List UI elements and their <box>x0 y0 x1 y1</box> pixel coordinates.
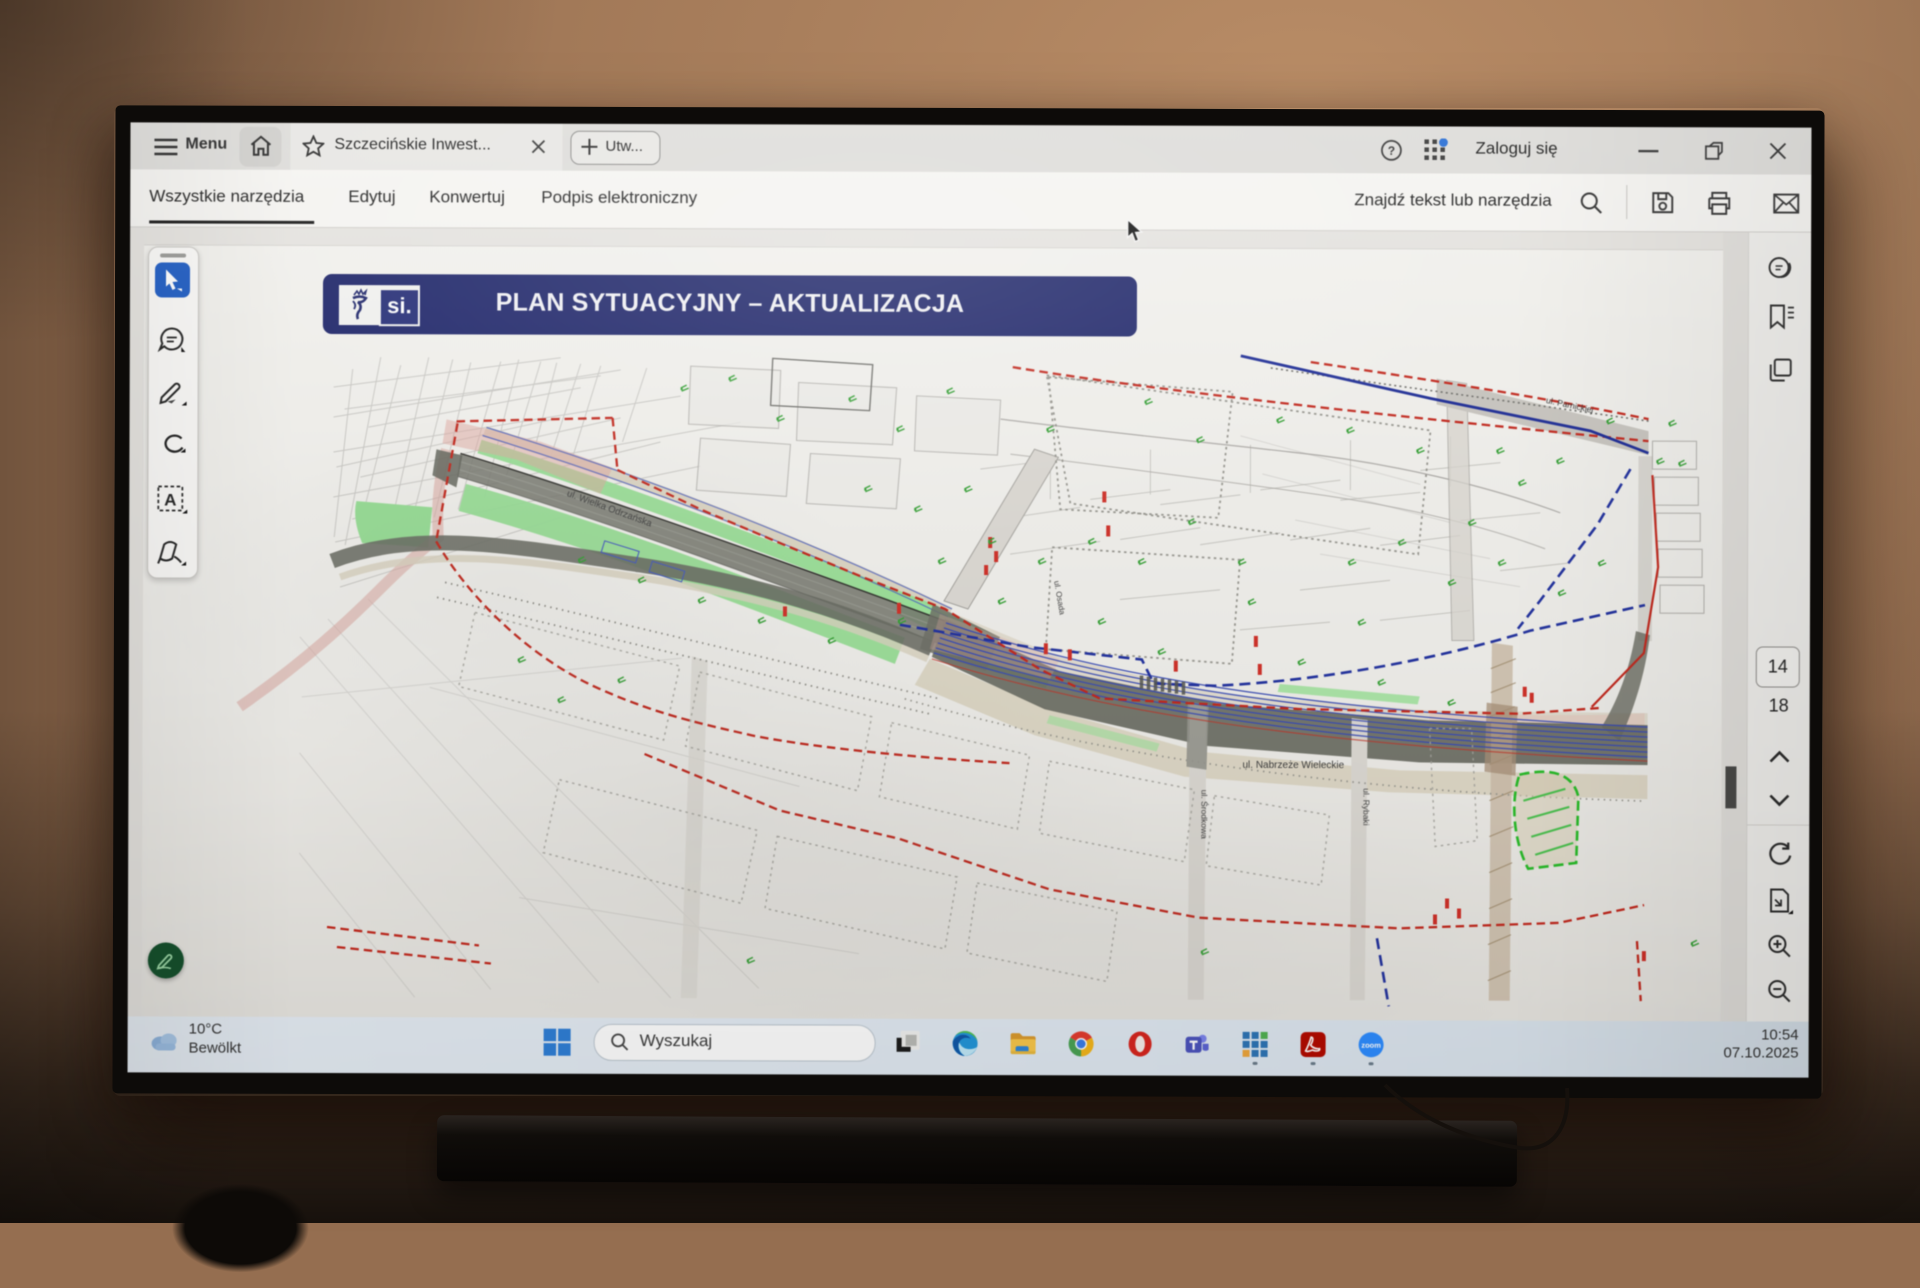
svg-text:ul. Osada: ul. Osada <box>1052 580 1067 616</box>
svg-text:zoom: zoom <box>1361 1041 1381 1050</box>
svg-text:ul. Nabrzeże Wieleckie: ul. Nabrzeże Wieleckie <box>1242 760 1344 771</box>
svg-text:?: ? <box>1388 144 1395 158</box>
svg-text:ul. Środkowa: ul. Środkowa <box>1199 790 1210 839</box>
svg-text:ul. Rybaki: ul. Rybaki <box>1361 788 1371 825</box>
svg-text:A: A <box>164 490 176 509</box>
